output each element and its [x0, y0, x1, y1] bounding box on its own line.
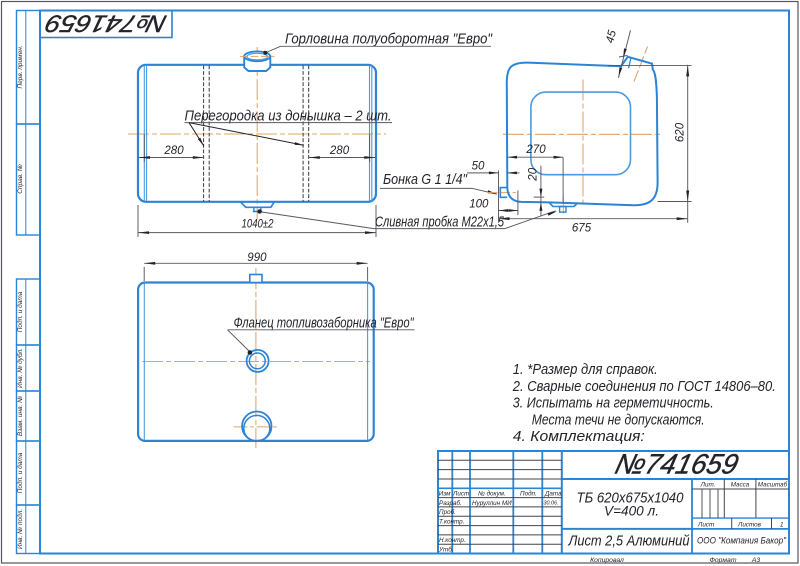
svg-text:Утб.: Утб. — [438, 545, 454, 553]
svg-text:А3: А3 — [751, 557, 761, 564]
svg-text:Проб.: Проб. — [439, 508, 456, 516]
svg-text:Перв. примен.: Перв. примен. — [17, 45, 24, 88]
svg-text:Инв. № дубл.: Инв. № дубл. — [16, 348, 24, 388]
svg-text:20: 20 — [528, 167, 540, 181]
svg-text:Дата: Дата — [544, 490, 562, 497]
svg-text:Сливная пробка М22х1,5: Сливная пробка М22х1,5 — [375, 215, 505, 231]
svg-text:Формат: Формат — [710, 557, 737, 564]
svg-text:Подп. и дата: Подп. и дата — [16, 452, 24, 493]
svg-text:Взам. инв. №: Взам. инв. № — [17, 396, 24, 436]
svg-text:Нуруллин МИ: Нуруллин МИ — [472, 500, 512, 507]
svg-text:Лист: Лист — [697, 521, 714, 528]
svg-text:Листов: Листов — [737, 521, 762, 528]
svg-text:Лист: Лист — [452, 490, 469, 497]
svg-text:270: 270 — [525, 144, 546, 156]
svg-text:Перегородка из донышка – 2 шт.: Перегородка из донышка – 2 шт. — [185, 108, 392, 124]
svg-text:675: 675 — [572, 223, 592, 235]
svg-text:Лист 2,5 Алюминий: Лист 2,5 Алюминий — [568, 533, 690, 550]
svg-text:Изм: Изм — [439, 490, 451, 497]
svg-text:№741659: №741659 — [42, 10, 169, 37]
svg-text:Масштаб: Масштаб — [758, 481, 788, 489]
svg-text:Т.контр.: Т.контр. — [439, 518, 464, 525]
svg-text:Места течи не допускаются.: Места течи не допускаются. — [532, 412, 705, 428]
svg-text:№741659: №741659 — [612, 449, 742, 481]
svg-text:Лит.: Лит. — [700, 482, 716, 489]
svg-text:Подп. и дата: Подп. и дата — [16, 291, 24, 332]
svg-text:Справ. №: Справ. № — [17, 164, 24, 194]
svg-text:Копировал: Копировал — [590, 557, 624, 564]
svg-text:1. *Размер для справок.: 1. *Размер для справок. — [513, 362, 658, 378]
svg-text:990: 990 — [247, 252, 267, 264]
svg-text:Бонка G 1 1/4": Бонка G 1 1/4" — [383, 172, 468, 188]
svg-text:30.06.: 30.06. — [544, 501, 559, 507]
svg-text:№ докум.: № докум. — [478, 489, 506, 497]
svg-text:2. Сварные соединения по ГОСТ: 2. Сварные соединения по ГОСТ 14806–80. — [512, 379, 776, 395]
svg-text:Горловина полуоборотная "Евро": Горловина полуоборотная "Евро" — [285, 32, 493, 48]
svg-text:280: 280 — [329, 145, 350, 157]
svg-text:1: 1 — [780, 521, 784, 528]
svg-text:620: 620 — [675, 122, 687, 142]
svg-text:3. Испытать на герметичность.: 3. Испытать на герметичность. — [513, 396, 714, 412]
svg-text:Подп.: Подп. — [520, 489, 537, 497]
svg-text:280: 280 — [163, 145, 184, 157]
svg-text:V=400 л.: V=400 л. — [604, 504, 659, 519]
svg-text:Масса: Масса — [731, 482, 750, 489]
svg-text:100: 100 — [469, 199, 489, 211]
svg-text:Разраб.: Разраб. — [439, 499, 462, 507]
svg-text:4. Комплектация:: 4. Комплектация: — [513, 429, 645, 445]
svg-text:1040±2: 1040±2 — [242, 219, 274, 231]
svg-text:50: 50 — [472, 160, 485, 172]
svg-text:ООО "Компания Бакор": ООО "Компания Бакор" — [697, 536, 787, 547]
svg-text:Фланец топливозаборника "Евро": Фланец топливозаборника "Евро" — [234, 316, 415, 332]
svg-text:Н.контр.: Н.контр. — [439, 537, 466, 544]
svg-text:Инв. № подл.: Инв. № подл. — [16, 509, 24, 550]
